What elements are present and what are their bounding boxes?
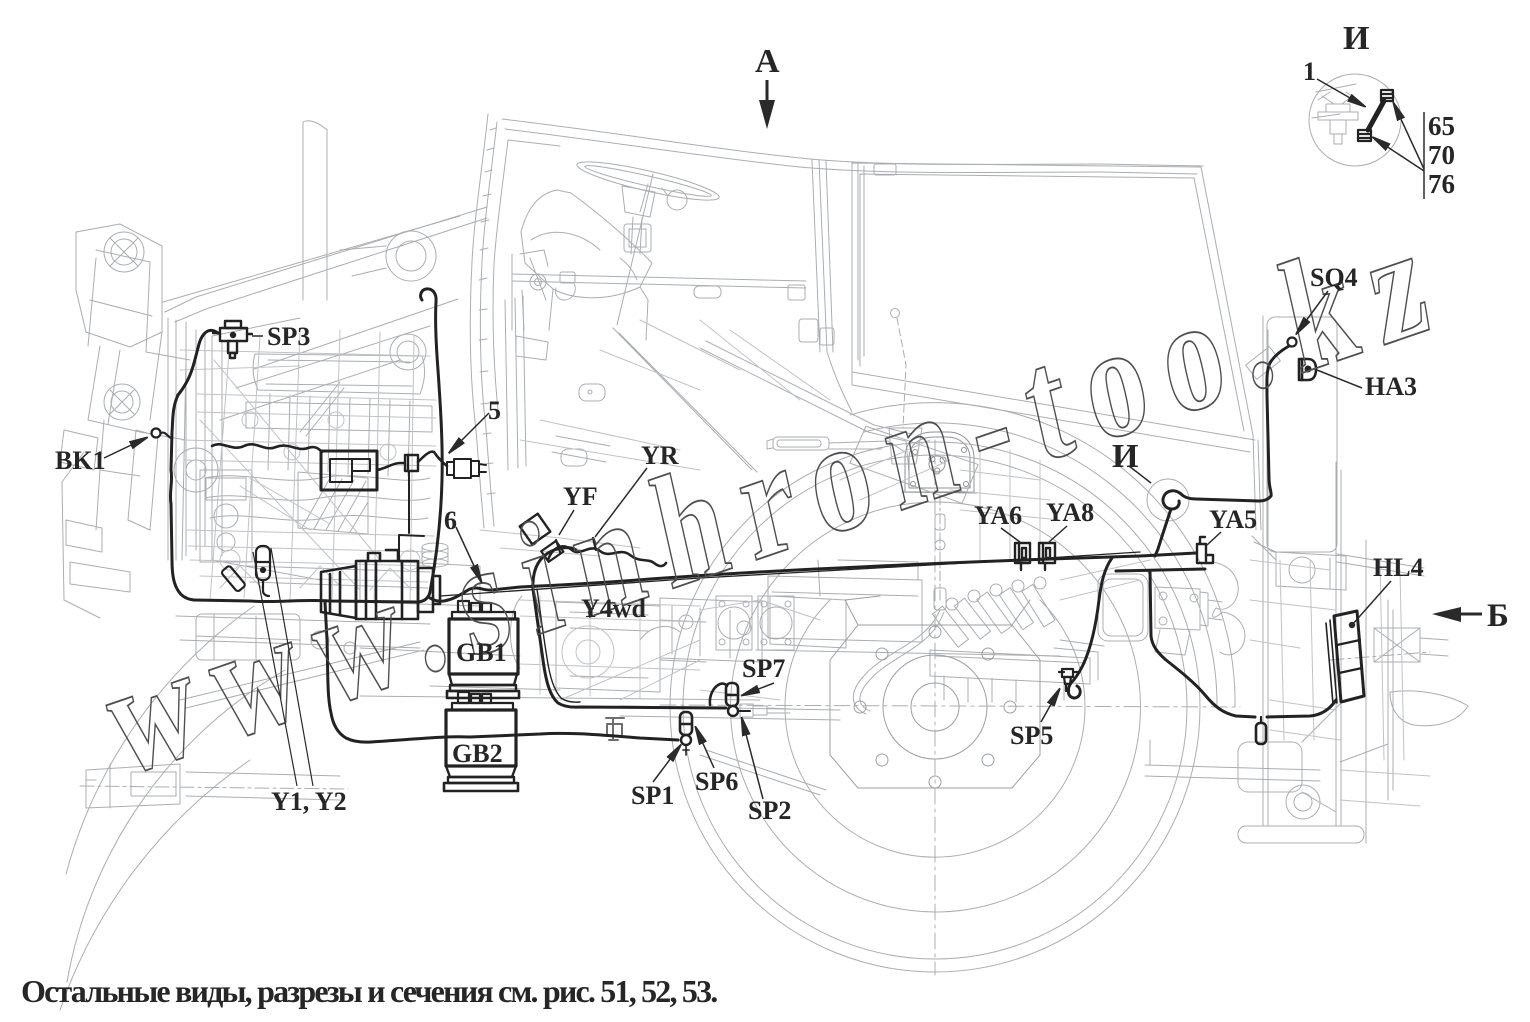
svg-text:HL4: HL4 — [1373, 553, 1424, 582]
svg-text:Y1, Y2: Y1, Y2 — [271, 787, 347, 816]
svg-text:5: 5 — [488, 396, 501, 425]
svg-text:HA3: HA3 — [1365, 372, 1417, 401]
svg-text:SP5: SP5 — [1010, 721, 1053, 750]
svg-text:1: 1 — [1303, 57, 1316, 86]
svg-text:SP6: SP6 — [695, 767, 738, 796]
svg-text:YA8: YA8 — [1046, 498, 1094, 527]
svg-text:76: 76 — [1428, 169, 1455, 199]
svg-text:YF: YF — [563, 482, 598, 511]
svg-text:SP3: SP3 — [267, 322, 310, 351]
svg-text:И: И — [1343, 20, 1369, 57]
svg-text:Остальные виды, разрезы и сече: Остальные виды, разрезы и сечения см. ри… — [21, 973, 717, 1009]
svg-text:GB1: GB1 — [456, 638, 507, 667]
svg-text:GB2: GB2 — [452, 739, 503, 768]
svg-text:6: 6 — [444, 506, 457, 535]
svg-text:YR: YR — [641, 441, 679, 470]
svg-text:SP7: SP7 — [742, 654, 785, 683]
svg-text:А: А — [755, 43, 780, 80]
svg-text:SP2: SP2 — [748, 796, 791, 825]
svg-text:70: 70 — [1428, 140, 1455, 170]
svg-text:SP1: SP1 — [631, 781, 674, 810]
svg-text:BK1: BK1 — [55, 446, 106, 475]
svg-text:И: И — [1112, 438, 1138, 475]
svg-text:YA5: YA5 — [1209, 505, 1257, 534]
svg-text:Y4wd: Y4wd — [581, 594, 647, 623]
svg-text:YA6: YA6 — [974, 501, 1022, 530]
svg-text:65: 65 — [1428, 111, 1455, 141]
svg-text:Б: Б — [1487, 598, 1509, 634]
svg-text:SQ4: SQ4 — [1310, 263, 1358, 292]
